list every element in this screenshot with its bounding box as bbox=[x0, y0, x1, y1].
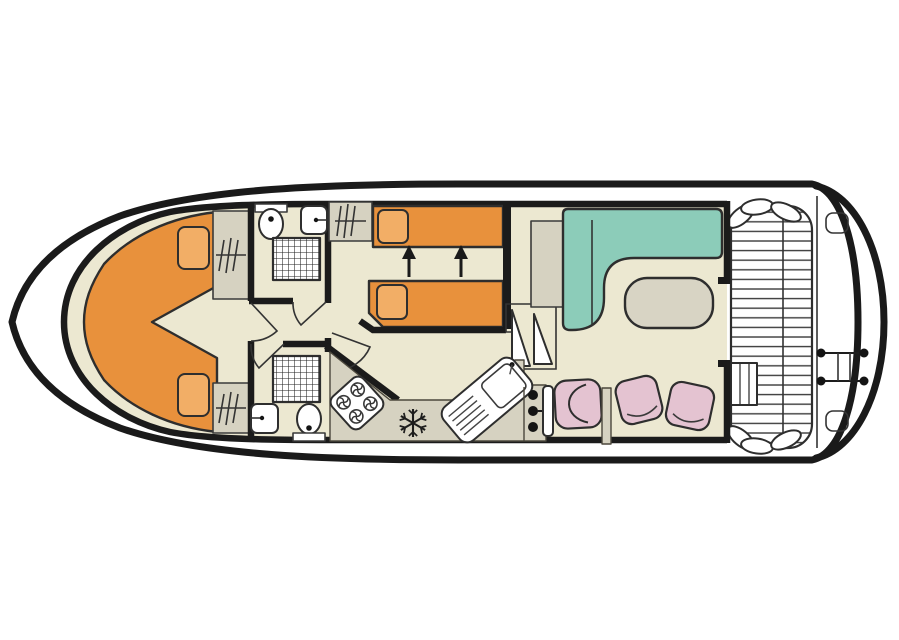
deck-slats bbox=[731, 206, 812, 448]
bed-pillow bbox=[377, 285, 407, 319]
shower-grid-icon bbox=[273, 238, 320, 280]
v-berth-pillow-bottom bbox=[178, 374, 209, 416]
table-post bbox=[602, 388, 611, 444]
wardrobe-bow-top bbox=[213, 211, 249, 299]
saloon bbox=[554, 209, 722, 444]
deck-steps bbox=[731, 363, 757, 405]
boat-floor-plan bbox=[0, 0, 899, 640]
wardrobe-bow-bottom bbox=[213, 383, 249, 433]
washbasin-icon bbox=[251, 404, 278, 433]
shower-grid-icon bbox=[273, 356, 320, 402]
floor-plan-canvas bbox=[0, 0, 899, 640]
door-frame-stub-lower bbox=[718, 360, 727, 367]
door-frame-stub-upper bbox=[718, 277, 727, 284]
wardrobe-twin bbox=[329, 202, 372, 241]
helm-seat bbox=[554, 379, 602, 429]
steering-wheel-icon bbox=[543, 386, 553, 436]
saloon-cabinet bbox=[531, 221, 563, 307]
washbasin-icon bbox=[301, 206, 327, 234]
saloon-chair bbox=[664, 380, 716, 432]
bed-pillow bbox=[378, 210, 408, 243]
v-berth-pillow-top bbox=[178, 227, 209, 269]
saloon-table bbox=[625, 278, 713, 328]
